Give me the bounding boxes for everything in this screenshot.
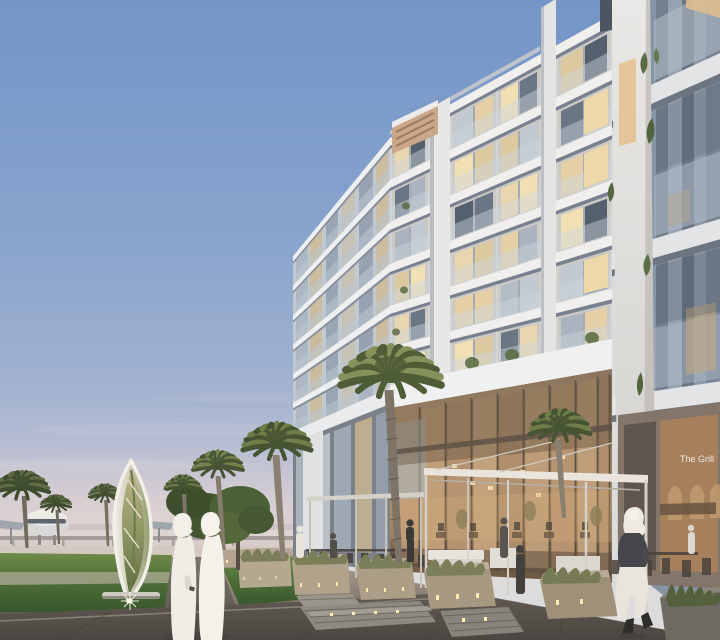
svg-text:The Grill: The Grill bbox=[680, 454, 714, 464]
